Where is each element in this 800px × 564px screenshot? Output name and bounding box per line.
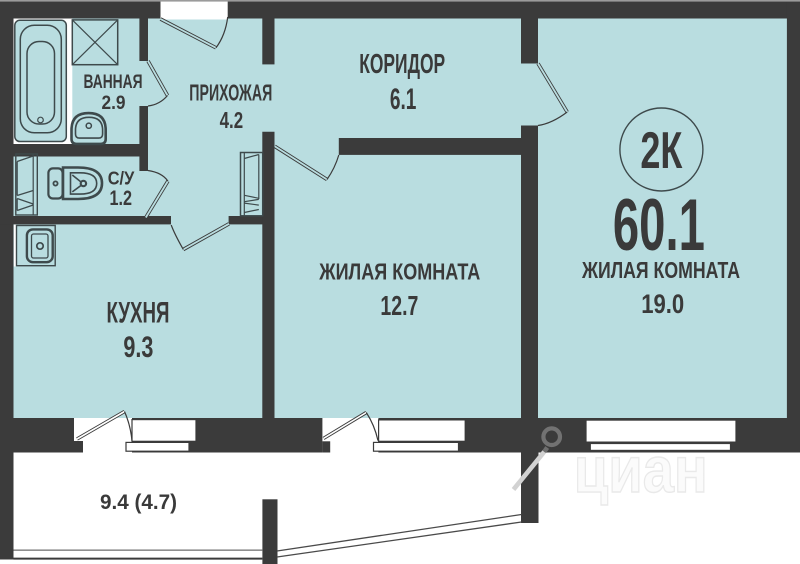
svg-text:ПРИХОЖАЯ: ПРИХОЖАЯ: [189, 80, 272, 106]
svg-text:КОРИДОР: КОРИДОР: [359, 48, 445, 79]
svg-text:60.1: 60.1: [613, 185, 705, 266]
svg-text:2К: 2К: [640, 122, 682, 180]
svg-text:19.0: 19.0: [641, 289, 684, 319]
svg-text:12.7: 12.7: [380, 290, 418, 321]
svg-text:9.4 (4.7): 9.4 (4.7): [100, 491, 177, 514]
svg-text:ВАННАЯ: ВАННАЯ: [84, 71, 143, 93]
svg-text:КУХНЯ: КУХНЯ: [107, 297, 170, 330]
svg-text:циан: циан: [574, 433, 708, 506]
svg-text:9.3: 9.3: [123, 331, 153, 364]
svg-text:2.9: 2.9: [102, 92, 126, 114]
svg-text:6.1: 6.1: [390, 83, 417, 116]
svg-text:1.2: 1.2: [110, 186, 133, 210]
svg-text:4.2: 4.2: [220, 107, 244, 133]
svg-text:ЖИЛАЯ КОМНАТА: ЖИЛАЯ КОМНАТА: [319, 258, 481, 284]
